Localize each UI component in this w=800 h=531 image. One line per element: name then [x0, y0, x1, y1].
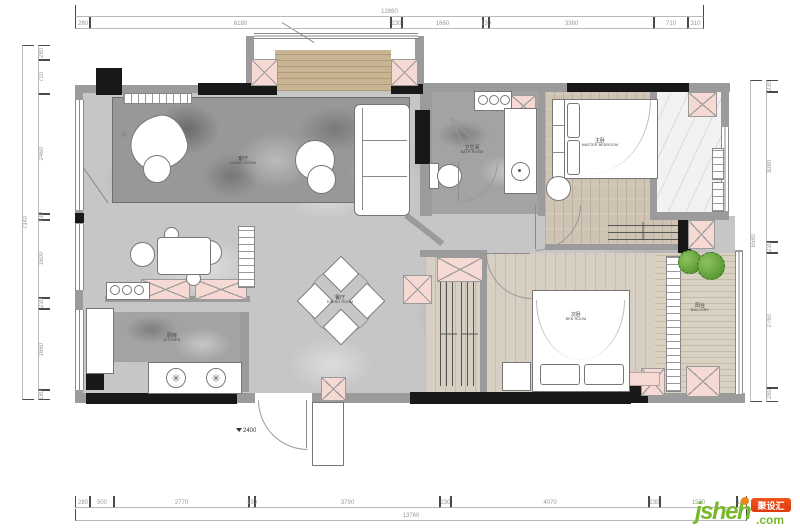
dim-segment: 2760 [766, 252, 778, 389]
shelf-unit [238, 226, 255, 288]
window-balcony [254, 33, 418, 39]
entry-door-leaf [306, 400, 307, 448]
dim-segment: 3080 [766, 91, 778, 243]
window [75, 100, 84, 210]
washer-knob-icon [478, 95, 488, 105]
wardrobe2-hangers [461, 282, 478, 386]
bedroom2-door-leaf [486, 253, 530, 254]
pillow [584, 364, 624, 385]
floor-balcony-top-deck [275, 50, 391, 91]
pillow [567, 103, 580, 138]
bath2-shelf [712, 148, 724, 180]
bench-pink [628, 372, 660, 386]
dining-chair [130, 242, 155, 267]
dim-segment: 310 [687, 17, 704, 29]
wall [420, 250, 486, 257]
dim-overall-bottom: 13760 [75, 509, 747, 521]
hood-knob-icon [134, 285, 144, 295]
sofa-back-line [362, 108, 363, 210]
pillow [540, 364, 580, 385]
dim-segment: 710 [653, 17, 689, 29]
dim-segment: 4070 [450, 496, 650, 508]
dining-table [157, 237, 211, 275]
dim-segment: 3380 [488, 17, 655, 29]
room-label-living: 客厅LIVING ROOM [230, 157, 256, 165]
watermark-badge: 聚设汇 [751, 498, 791, 512]
coffee-table-small [307, 165, 336, 194]
wall-black [415, 110, 430, 164]
dim-overall-right: 6580 [750, 80, 762, 402]
dim-segment: 280 [766, 387, 778, 402]
wall-black [86, 374, 104, 390]
dim-overall-left: 7340 [22, 45, 34, 400]
dim-segment: 6180 [89, 17, 392, 29]
room-label-master-bedroom: 主卧MASTER BEDROOM [582, 139, 618, 147]
shoe-cabinet [312, 402, 344, 466]
column-marker [686, 366, 720, 397]
sofa-seat-line [362, 140, 407, 141]
room-label-balcony: 阳台BALCONY [691, 304, 709, 312]
sofa-seat-line [362, 176, 407, 177]
column-marker [251, 59, 278, 86]
dim-segment: 710 [38, 59, 50, 95]
master-door-leaf [535, 205, 536, 249]
headboard-line [552, 125, 564, 126]
dim-segment: 3790 [254, 496, 441, 508]
wall-black [75, 213, 84, 223]
room-label-bathroom: 卫生间BATH ROOM [461, 146, 484, 154]
washer-knob-icon [500, 95, 510, 105]
window [75, 310, 84, 390]
washer-knob-icon [489, 95, 499, 105]
side-table [143, 155, 171, 183]
column-marker [391, 59, 418, 86]
sink-drain [518, 169, 521, 172]
room-label-bedroom2: 次卧BED ROOM [566, 313, 587, 321]
tv-shelf [123, 93, 192, 104]
bathroom-door-leaf [458, 162, 459, 200]
nightstand [502, 362, 531, 391]
wall [650, 212, 729, 220]
hood-knob-icon [110, 285, 120, 295]
wardrobe2-hangers [440, 282, 457, 386]
wall-black [96, 68, 122, 95]
plant-icon [697, 252, 725, 280]
watermark-tld: .com [756, 513, 784, 527]
watermark-dot-icon [741, 497, 749, 505]
dim-segment: 500 [89, 496, 115, 508]
column-marker [403, 275, 432, 304]
dim-segment: 1600 [38, 219, 50, 299]
floor-plan-canvas: ✳ ✳ ✳ [0, 0, 800, 531]
vanity-counter [504, 108, 537, 194]
stove-burner: ✳ [206, 368, 226, 388]
column-marker [437, 257, 483, 282]
room-label-kitchen: 厨房KITCHEN [164, 334, 181, 342]
dim-segment: 2460 [38, 93, 50, 215]
dim-segment: 1660 [401, 17, 484, 29]
dim-segment: 180 [38, 389, 50, 400]
kitchen-island [148, 362, 242, 394]
column-marker [688, 220, 715, 249]
wall-black [567, 83, 689, 92]
headboard-line [552, 152, 564, 153]
wall [689, 83, 730, 92]
dim-segment: 2770 [113, 496, 250, 508]
wall [545, 244, 691, 250]
flower-icon: ✳ [119, 128, 128, 141]
kitchen-cabinet [86, 308, 114, 374]
dim-overall-top: 12860 [75, 5, 704, 17]
dim-segment: 1660 [38, 308, 50, 391]
bath2-shelf [712, 182, 724, 212]
wall-black [86, 393, 237, 404]
column-marker [688, 92, 717, 117]
entry-door-arc [258, 400, 308, 450]
hood-knob-icon [122, 285, 132, 295]
window [75, 224, 84, 290]
level-marker: 2400 [236, 428, 256, 434]
pillow [567, 140, 580, 175]
window [735, 252, 743, 394]
stove-burner: ✳ [166, 368, 186, 388]
wardrobe-hangers [608, 222, 678, 240]
nightstand-round [546, 176, 571, 201]
watermark: jsheh 聚设汇 .com [693, 496, 799, 530]
balcony-counter [666, 256, 681, 392]
wall-black [410, 392, 631, 404]
column-marker [321, 377, 346, 401]
wall [538, 92, 545, 216]
room-label-dining: 餐厅DINING ROOM [327, 296, 353, 304]
